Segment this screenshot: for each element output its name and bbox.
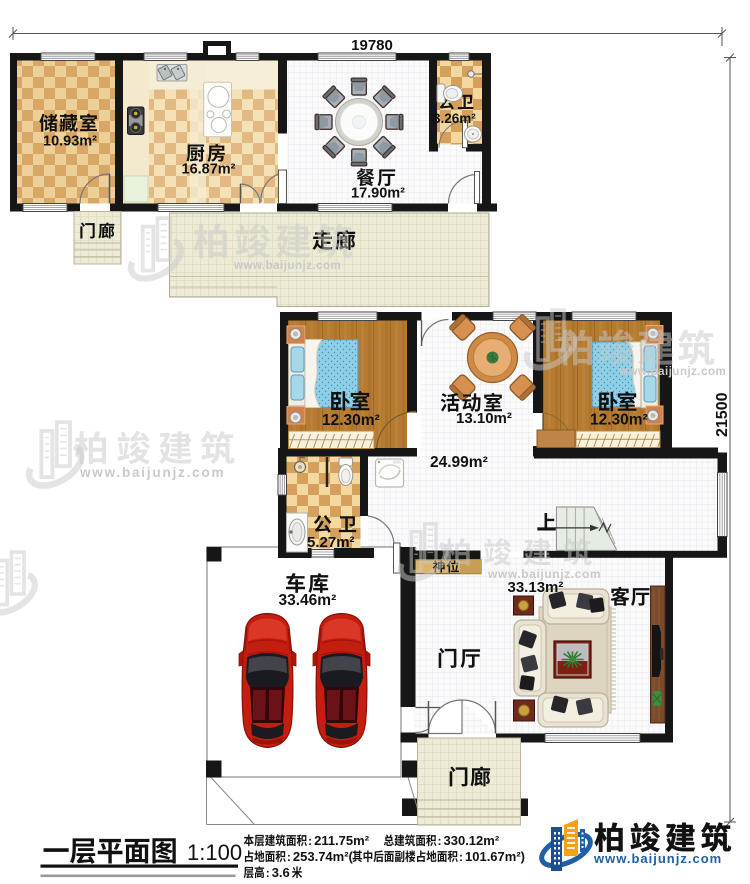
svg-text:330.12m²: 330.12m² xyxy=(444,833,500,848)
svg-text:1:100: 1:100 xyxy=(187,840,242,865)
svg-text:211.75m²: 211.75m² xyxy=(314,833,370,848)
svg-text:13.10m²: 13.10m² xyxy=(456,410,512,427)
svg-text:16.87m²: 16.87m² xyxy=(182,162,236,178)
svg-text:5.27m²: 5.27m² xyxy=(307,534,355,551)
svg-text:10.93m²: 10.93m² xyxy=(43,134,97,150)
svg-text:www.baijunjz.com: www.baijunjz.com xyxy=(233,260,341,272)
svg-text:www.baijunjz.com: www.baijunjz.com xyxy=(79,465,225,480)
svg-text:21500: 21500 xyxy=(714,392,731,437)
svg-text::: : xyxy=(438,834,442,848)
svg-text:19780: 19780 xyxy=(351,37,393,54)
svg-text:www.baijunjz.com: www.baijunjz.com xyxy=(618,366,726,378)
svg-text:101.67m²): 101.67m²) xyxy=(465,849,525,864)
svg-text:3.26m²: 3.26m² xyxy=(433,111,476,126)
svg-text::: : xyxy=(266,866,270,880)
svg-text:www.baijunjz.com: www.baijunjz.com xyxy=(487,567,601,581)
svg-text:12.30m²: 12.30m² xyxy=(590,412,648,429)
svg-text:253.74m²(: 253.74m²( xyxy=(293,849,354,864)
svg-text:www.baijunjz.com: www.baijunjz.com xyxy=(593,851,722,866)
svg-text:12.30m²: 12.30m² xyxy=(322,412,380,429)
svg-text::: : xyxy=(459,850,463,864)
svg-text:3.6: 3.6 xyxy=(272,865,290,880)
svg-text::: : xyxy=(308,834,312,848)
svg-text:17.90m²: 17.90m² xyxy=(351,186,405,202)
svg-text::: : xyxy=(287,850,291,864)
svg-text:24.99m²: 24.99m² xyxy=(430,454,488,471)
svg-text:33.13m²: 33.13m² xyxy=(508,579,564,596)
svg-text:33.46m²: 33.46m² xyxy=(279,592,337,609)
